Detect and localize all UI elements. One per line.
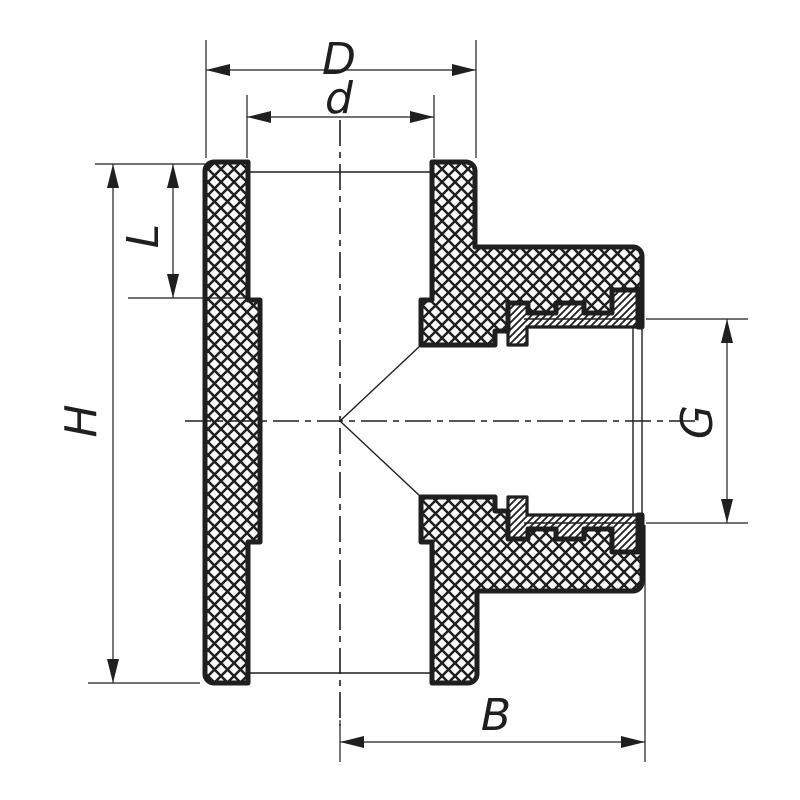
dim-label-H: H — [56, 404, 107, 437]
technical-drawing: D d L H G B — [0, 0, 800, 800]
dim-label-L: L — [118, 224, 169, 249]
drawing-canvas: D d L H G B — [0, 0, 800, 800]
dim-label-B: B — [481, 690, 511, 741]
drawing-background — [0, 0, 800, 800]
dim-label-G: G — [672, 405, 723, 439]
dim-label-d: d — [325, 73, 354, 124]
